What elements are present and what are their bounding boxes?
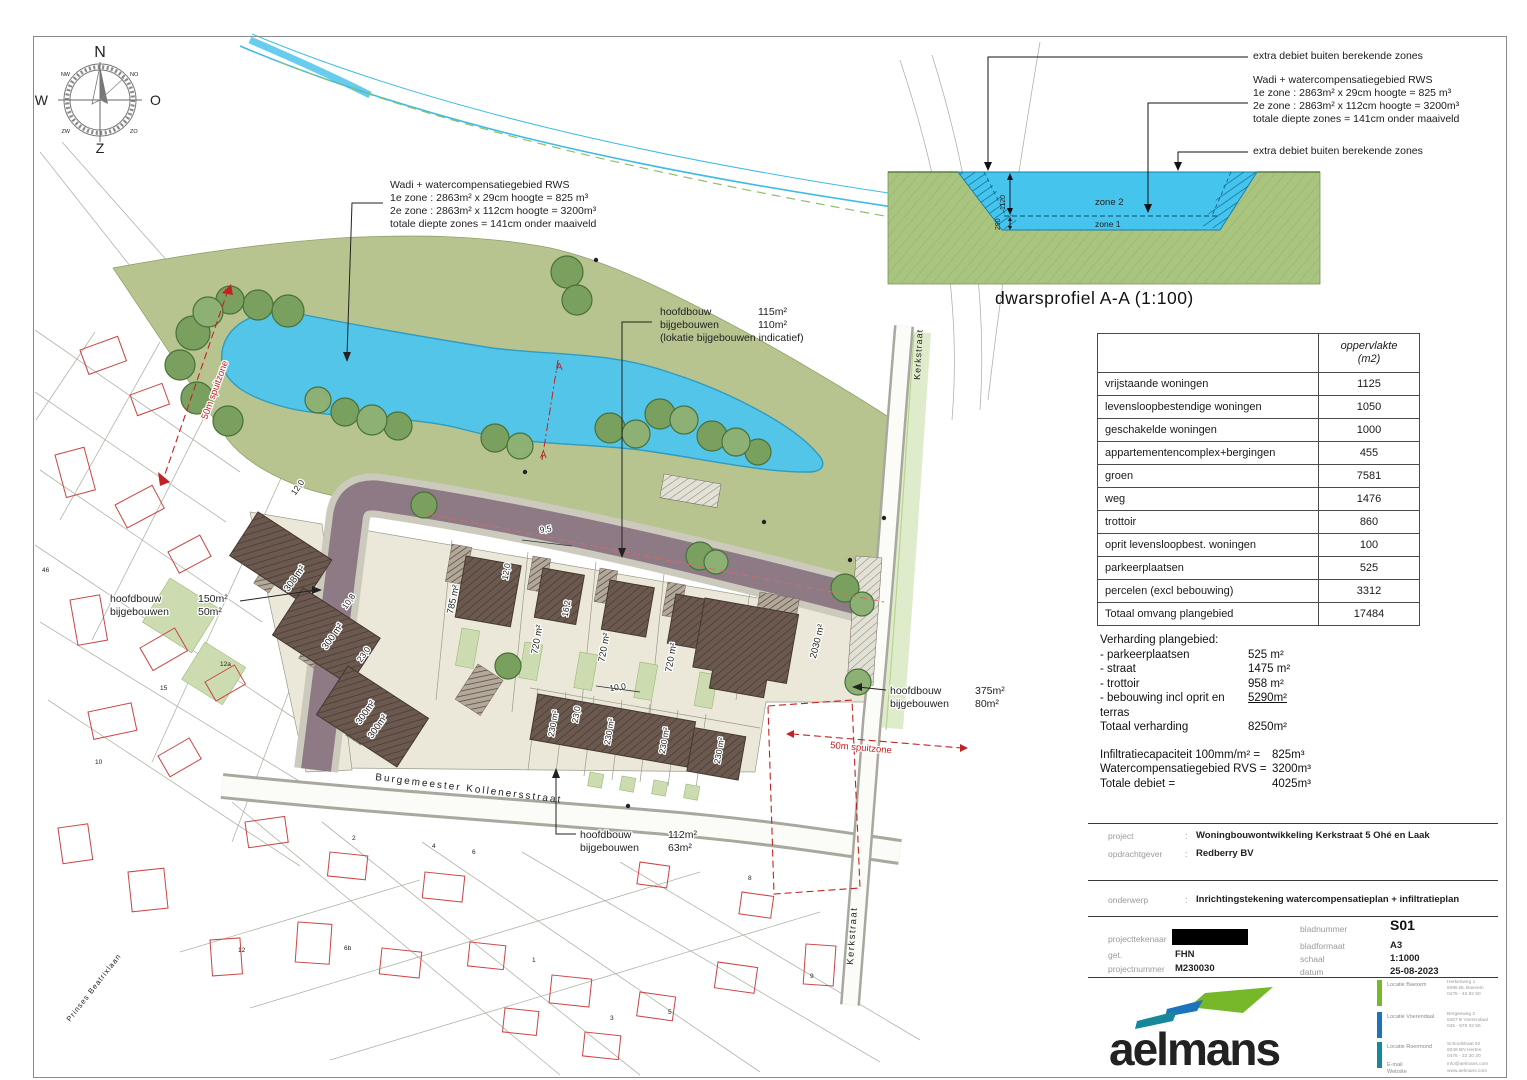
- profile-title: dwarsprofiel A-A (1:100): [995, 288, 1194, 309]
- table-row: trottoir860: [1098, 511, 1420, 534]
- svg-text:3: 3: [610, 1015, 614, 1022]
- svg-text:bijgebouwen: bijgebouwen: [110, 606, 169, 618]
- profile-zone2-label: zone 2: [1095, 197, 1124, 208]
- note-right: hoofdbouw375m² bijgebouwen80m²: [890, 685, 1005, 710]
- compass-w: W: [35, 92, 49, 108]
- compass-s: Z: [96, 140, 105, 156]
- drawing-sheet: N Z W O NW NO ZW ZO Wadi + watercompensa…: [0, 0, 1527, 1080]
- location-bar-green: [1377, 980, 1382, 1006]
- svg-text:2: 2: [352, 835, 356, 842]
- svg-text:hoofdbouw: hoofdbouw: [110, 593, 162, 605]
- location-address: Bergseweg 26367 B Voerendaal045 - 575 32…: [1447, 1012, 1488, 1030]
- svg-text:5: 5: [668, 1009, 672, 1016]
- svg-text:8: 8: [748, 875, 752, 882]
- profile-note-mid: Wadi + watercompensatiegebied RWS 1e zon…: [1253, 74, 1459, 126]
- wadi-note: Wadi + watercompensatiegebied RWS 1e zon…: [390, 179, 597, 230]
- client-name: Redberry BV: [1196, 848, 1254, 859]
- table-row: appartementencomplex+bergingen455: [1098, 442, 1420, 465]
- svg-text:80m²: 80m²: [975, 698, 999, 710]
- table-header: oppervlakte: [1341, 340, 1398, 352]
- svg-text:hoofdbouw: hoofdbouw: [890, 685, 942, 697]
- svg-text:2e zone : 2863m² x 112cm hoogt: 2e zone : 2863m² x 112cm hoogte = 3200m³: [390, 205, 597, 217]
- table-row: parkeerplaatsen525: [1098, 557, 1420, 580]
- compass-rose: N Z W O NW NO ZW ZO: [35, 44, 161, 156]
- table-row: percelen (excl bebouwing)3312: [1098, 580, 1420, 603]
- svg-text:bijgebouwen: bijgebouwen: [660, 319, 719, 331]
- svg-text:9,5: 9,5: [539, 523, 552, 535]
- svg-text:1e zone : 2863m² x 29cm hoogte: 1e zone : 2863m² x 29cm hoogte = 825 m³: [390, 192, 589, 204]
- location-bar-teal: [1377, 1042, 1382, 1068]
- svg-text:6b: 6b: [344, 945, 352, 952]
- table-row: levensloopbestendige woningen1050: [1098, 396, 1420, 419]
- compass-nw: NW: [61, 72, 71, 78]
- svg-text:63m²: 63m²: [668, 842, 692, 854]
- svg-text:totale diepte zones = 141cm on: totale diepte zones = 141cm onder maaive…: [390, 218, 596, 230]
- aelmans-logo-icon: aelmans: [1105, 985, 1345, 1075]
- section-marker-a-bottom: A: [540, 450, 547, 461]
- svg-text:Wadi + watercompensatiegebied: Wadi + watercompensatiegebied RWS: [390, 179, 569, 191]
- profile-dim-zone1: 290: [995, 218, 1002, 230]
- location-bar-blue: [1377, 1012, 1382, 1038]
- profile-dim-zone2: 1120: [1000, 195, 1007, 210]
- svg-text:1: 1: [532, 957, 536, 964]
- profile-note-top: extra debiet buiten berekende zones: [1253, 50, 1423, 63]
- section-marker-a-top: A: [556, 362, 563, 373]
- svg-text:150m²: 150m²: [198, 593, 228, 605]
- svg-text:15: 15: [160, 685, 168, 692]
- compass-sw: ZW: [61, 129, 70, 135]
- drawing-subject: Inrichtingstekening watercompensatieplan…: [1196, 894, 1459, 905]
- svg-text:10: 10: [95, 759, 103, 766]
- svg-text:110m²: 110m²: [758, 319, 787, 331]
- svg-text:375m²: 375m²: [975, 685, 1005, 697]
- profile-note-bottom: extra debiet buiten berekende zones: [1253, 145, 1423, 158]
- svg-text:12: 12: [238, 947, 246, 954]
- svg-text:46: 46: [42, 567, 50, 574]
- profile-zone1-label: zone 1: [1095, 219, 1121, 229]
- svg-text:4: 4: [432, 843, 436, 850]
- svg-text:bijgebouwen: bijgebouwen: [890, 698, 949, 710]
- table-row: groen7581: [1098, 465, 1420, 488]
- compass-ne: NO: [130, 72, 139, 78]
- svg-text:6: 6: [472, 849, 476, 856]
- svg-text:115m²: 115m²: [758, 306, 787, 318]
- compass-se: ZO: [130, 129, 138, 135]
- compass-e: O: [150, 92, 161, 108]
- verharding-title: Verharding plangebied:: [1100, 633, 1360, 648]
- verharding-summary: Verharding plangebied: - parkeerplaatsen…: [1100, 633, 1360, 791]
- street-prinses: Prinses Beatrixlaan: [64, 952, 123, 1023]
- svg-text:hoofdbouw: hoofdbouw: [580, 829, 632, 841]
- project-title: Woningbouwontwikkeling Kerkstraat 5 Ohé …: [1196, 830, 1430, 841]
- table-row: oprit levensloopbest. woningen100: [1098, 534, 1420, 557]
- svg-text:50m²: 50m²: [198, 606, 222, 618]
- compass-n: N: [94, 44, 106, 61]
- redacted-name: [1172, 929, 1248, 945]
- aelmans-wordmark: aelmans: [1109, 1023, 1280, 1075]
- svg-text:(lokatie bijgebouwen indicatie: (lokatie bijgebouwen indicatief): [660, 332, 804, 344]
- location-address: Schoolstraat 526049 BN Herten0475 - 33 3…: [1447, 1042, 1481, 1060]
- svg-text:hoofdbouw: hoofdbouw: [660, 306, 712, 318]
- svg-text:bijgebouwen: bijgebouwen: [580, 842, 639, 854]
- table-row: geschakelde woningen1000: [1098, 419, 1420, 442]
- svg-text:9: 9: [810, 973, 814, 980]
- svg-text:12a: 12a: [220, 661, 231, 668]
- sheet-number: S01: [1390, 917, 1415, 933]
- table-row: weg1476: [1098, 488, 1420, 511]
- svg-text:112m²: 112m²: [668, 829, 697, 841]
- location-address: Herkenweg 16095 BL Baexem0475 - 45 92 60: [1447, 980, 1484, 998]
- table-row: vrijstaande woningen1125: [1098, 373, 1420, 396]
- table-row: Totaal omvang plangebied17484: [1098, 603, 1420, 626]
- area-table: oppervlakte(m2) vrijstaande woningen1125…: [1097, 333, 1420, 626]
